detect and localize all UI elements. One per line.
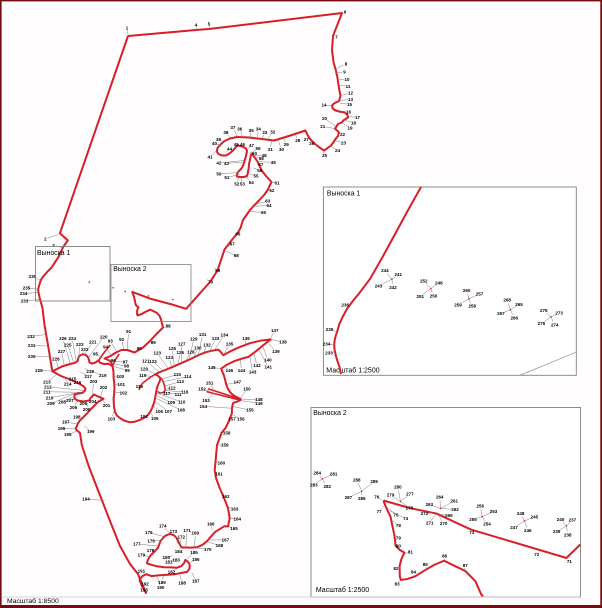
svg-text:271: 271 [426, 520, 434, 525]
svg-text:229: 229 [35, 368, 43, 373]
svg-text:264: 264 [436, 494, 444, 499]
svg-text:244: 244 [381, 268, 389, 273]
svg-text:285: 285 [370, 479, 378, 484]
svg-text:96: 96 [111, 358, 117, 363]
svg-text:238: 238 [564, 533, 572, 538]
svg-text:Масштаб 1:2500: Масштаб 1:2500 [316, 586, 369, 594]
svg-text:30: 30 [279, 147, 285, 152]
svg-text:Выноска 2: Выноска 2 [313, 410, 347, 417]
svg-text:150: 150 [243, 386, 251, 391]
svg-text:145: 145 [208, 365, 216, 370]
svg-text:84: 84 [411, 570, 417, 575]
svg-text:267: 267 [497, 311, 505, 316]
svg-text:122: 122 [149, 359, 157, 364]
svg-text:146: 146 [226, 368, 234, 373]
svg-text:131: 131 [199, 332, 207, 337]
svg-text:171: 171 [183, 528, 191, 533]
svg-text:62: 62 [269, 188, 275, 193]
svg-text:245: 245 [531, 514, 539, 519]
svg-text:209: 209 [47, 401, 55, 406]
svg-text:10: 10 [344, 77, 350, 82]
svg-text:159: 159 [221, 443, 229, 448]
svg-text:16: 16 [346, 110, 352, 115]
svg-text:153: 153 [202, 398, 210, 403]
svg-text:221: 221 [89, 339, 97, 344]
svg-text:26: 26 [309, 141, 315, 146]
svg-text:268: 268 [503, 298, 511, 303]
svg-text:242: 242 [389, 285, 397, 290]
svg-text:112: 112 [168, 385, 176, 390]
svg-text:205: 205 [80, 401, 88, 406]
svg-text:199: 199 [87, 429, 95, 434]
svg-text:37: 37 [230, 125, 236, 130]
svg-text:113: 113 [177, 379, 185, 384]
svg-text:137: 137 [271, 328, 279, 333]
svg-text:139: 139 [272, 349, 280, 354]
svg-text:45: 45 [234, 142, 240, 147]
svg-text:272: 272 [421, 511, 429, 516]
svg-text:254: 254 [483, 521, 491, 526]
svg-text:186: 186 [192, 557, 200, 562]
svg-text:195: 195 [64, 432, 72, 437]
svg-text:265: 265 [515, 302, 523, 307]
svg-text:117: 117 [163, 391, 171, 396]
svg-text:22: 22 [340, 132, 346, 137]
svg-text:133: 133 [212, 336, 220, 341]
svg-text:173: 173 [170, 529, 178, 534]
svg-text:82: 82 [393, 566, 399, 571]
svg-text:36: 36 [237, 127, 243, 132]
svg-text:174: 174 [159, 524, 167, 529]
svg-text:203: 203 [90, 379, 98, 384]
svg-text:142: 142 [253, 363, 261, 368]
svg-text:239: 239 [553, 529, 561, 534]
svg-text:77: 77 [377, 509, 383, 514]
svg-text:64: 64 [266, 203, 272, 208]
svg-text:31: 31 [268, 147, 274, 152]
svg-text:40: 40 [212, 141, 218, 146]
svg-text:191: 191 [138, 569, 146, 574]
svg-text:187: 187 [192, 579, 200, 584]
svg-text:208: 208 [58, 400, 66, 405]
svg-text:255: 255 [469, 517, 477, 522]
svg-text:29: 29 [284, 142, 290, 147]
svg-text:222: 222 [81, 347, 89, 352]
svg-text:196: 196 [58, 426, 66, 431]
svg-text:223: 223 [76, 342, 84, 347]
svg-text:130: 130 [194, 345, 202, 350]
svg-text:266: 266 [510, 315, 518, 320]
svg-text:109: 109 [168, 400, 176, 405]
svg-text:253: 253 [490, 509, 498, 514]
svg-text:155: 155 [246, 408, 254, 413]
svg-text:177: 177 [133, 542, 141, 547]
svg-text:108: 108 [177, 408, 185, 413]
svg-text:168: 168 [216, 543, 224, 548]
svg-text:70: 70 [208, 279, 214, 284]
svg-text:151: 151 [206, 380, 214, 385]
svg-text:237: 237 [569, 517, 577, 522]
svg-text:44: 44 [227, 147, 233, 152]
svg-text:90: 90 [137, 346, 143, 351]
svg-text:58: 58 [259, 156, 265, 161]
svg-text:92: 92 [119, 337, 125, 342]
svg-text:164: 164 [234, 517, 242, 522]
svg-text:95: 95 [93, 351, 99, 356]
svg-text:72: 72 [534, 552, 540, 557]
svg-text:250: 250 [430, 293, 438, 298]
svg-text:163: 163 [231, 507, 239, 512]
svg-text:53: 53 [240, 182, 246, 187]
svg-text:78: 78 [396, 523, 402, 528]
svg-text:105: 105 [151, 416, 159, 421]
svg-text:74: 74 [403, 516, 409, 521]
svg-text:144: 144 [238, 368, 246, 373]
svg-text:118: 118 [136, 384, 144, 389]
svg-text:120: 120 [141, 366, 149, 371]
svg-text:175: 175 [145, 530, 153, 535]
svg-text:65: 65 [261, 210, 267, 215]
svg-text:71: 71 [567, 559, 573, 564]
svg-text:104: 104 [140, 414, 148, 419]
svg-text:17: 17 [355, 115, 361, 120]
svg-text:99: 99 [125, 368, 131, 373]
svg-text:214: 214 [64, 382, 72, 387]
svg-text:234: 234 [20, 291, 28, 296]
svg-text:20: 20 [322, 116, 328, 121]
svg-text:57: 57 [258, 162, 264, 167]
svg-text:273: 273 [555, 311, 563, 316]
svg-text:47: 47 [249, 143, 255, 148]
svg-text:14: 14 [321, 103, 327, 108]
svg-text:67: 67 [230, 241, 236, 246]
svg-text:152: 152 [198, 387, 206, 392]
svg-text:280: 280 [394, 484, 402, 489]
svg-text:281: 281 [330, 472, 338, 477]
svg-text:50: 50 [216, 171, 222, 176]
svg-text:143: 143 [249, 369, 257, 374]
svg-text:Масштаб 1:8500: Масштаб 1:8500 [7, 597, 59, 605]
svg-text:49: 49 [271, 160, 277, 165]
svg-text:235: 235 [326, 327, 334, 332]
svg-text:243: 243 [375, 284, 383, 289]
svg-text:247: 247 [510, 525, 518, 530]
svg-text:182: 182 [168, 569, 176, 574]
svg-text:129: 129 [190, 337, 198, 342]
svg-text:136: 136 [242, 336, 250, 341]
svg-text:276: 276 [540, 308, 548, 313]
svg-text:103: 103 [108, 417, 116, 422]
svg-text:116: 116 [181, 389, 189, 394]
svg-text:41: 41 [207, 155, 213, 160]
svg-text:42: 42 [216, 161, 222, 166]
svg-text:227: 227 [58, 349, 66, 354]
svg-text:260: 260 [463, 288, 471, 293]
svg-text:87: 87 [463, 563, 469, 568]
svg-text:25: 25 [322, 153, 328, 158]
svg-text:190: 190 [157, 585, 165, 590]
svg-text:256: 256 [476, 503, 484, 508]
svg-text:275: 275 [538, 321, 546, 326]
svg-text:73: 73 [469, 530, 475, 535]
svg-text:263: 263 [425, 502, 433, 507]
svg-text:33: 33 [262, 130, 268, 135]
svg-text:226: 226 [59, 336, 67, 341]
svg-text:278: 278 [406, 505, 414, 510]
svg-text:220: 220 [100, 335, 108, 340]
svg-text:274: 274 [551, 323, 559, 328]
svg-text:241: 241 [395, 272, 403, 277]
svg-text:125: 125 [168, 346, 176, 351]
svg-text:132: 132 [203, 342, 211, 347]
svg-text:156: 156 [237, 417, 245, 422]
svg-text:178: 178 [147, 548, 155, 553]
svg-text:258: 258 [469, 304, 477, 309]
svg-text:282: 282 [323, 484, 331, 489]
svg-text:102: 102 [120, 390, 128, 395]
svg-text:279: 279 [387, 492, 395, 497]
svg-text:Выноска 2: Выноска 2 [113, 266, 147, 273]
svg-text:161: 161 [215, 471, 223, 476]
svg-text:114: 114 [184, 374, 192, 379]
svg-text:119: 119 [139, 373, 147, 378]
svg-text:79: 79 [396, 535, 402, 540]
svg-text:166: 166 [207, 521, 215, 526]
svg-text:141: 141 [265, 365, 273, 370]
svg-text:201: 201 [103, 403, 111, 408]
svg-text:160: 160 [218, 461, 226, 466]
svg-text:179: 179 [138, 552, 146, 557]
svg-text:167: 167 [222, 537, 230, 542]
svg-text:11: 11 [346, 84, 351, 89]
svg-text:21: 21 [320, 124, 326, 129]
svg-text:169: 169 [192, 531, 200, 536]
svg-text:19: 19 [347, 126, 353, 131]
svg-text:140: 140 [264, 357, 272, 362]
svg-text:66: 66 [235, 232, 241, 237]
svg-text:200: 200 [83, 407, 91, 412]
svg-text:287: 287 [345, 495, 353, 500]
svg-text:Выноска 1: Выноска 1 [37, 250, 71, 257]
svg-text:46: 46 [240, 142, 246, 147]
svg-text:210: 210 [46, 395, 54, 400]
svg-text:88: 88 [166, 324, 172, 329]
svg-text:93: 93 [108, 339, 114, 344]
svg-text:262: 262 [451, 507, 459, 512]
svg-text:194: 194 [82, 497, 90, 502]
svg-text:55: 55 [253, 174, 259, 179]
svg-text:234: 234 [323, 342, 331, 347]
svg-text:207: 207 [66, 398, 74, 403]
svg-text:202: 202 [100, 385, 108, 390]
svg-text:259: 259 [454, 303, 462, 308]
svg-text:80: 80 [396, 544, 402, 549]
svg-text:68: 68 [234, 253, 240, 258]
svg-text:228: 228 [52, 356, 60, 361]
svg-text:85: 85 [423, 562, 429, 567]
svg-text:86: 86 [442, 553, 448, 558]
svg-text:162: 162 [222, 494, 230, 499]
svg-text:216: 216 [74, 380, 82, 385]
svg-text:269: 269 [445, 513, 453, 518]
svg-text:206: 206 [70, 405, 78, 410]
svg-text:240: 240 [557, 517, 565, 522]
svg-text:288: 288 [353, 477, 361, 482]
svg-text:261: 261 [450, 499, 458, 504]
svg-text:211: 211 [43, 389, 51, 394]
svg-text:91: 91 [126, 329, 132, 334]
svg-text:246: 246 [524, 528, 532, 533]
svg-text:83: 83 [395, 582, 401, 587]
svg-text:61: 61 [274, 181, 280, 186]
svg-text:81: 81 [408, 549, 414, 554]
svg-text:134: 134 [220, 333, 228, 338]
svg-text:165: 165 [230, 526, 238, 531]
svg-text:124: 124 [165, 355, 173, 360]
svg-text:224: 224 [68, 336, 76, 341]
svg-text:233: 233 [325, 350, 333, 355]
svg-text:184: 184 [175, 549, 183, 554]
svg-text:101: 101 [118, 382, 126, 387]
svg-text:127: 127 [178, 342, 186, 347]
svg-text:192: 192 [141, 582, 149, 587]
svg-text:60: 60 [252, 151, 258, 156]
svg-text:43: 43 [224, 161, 230, 166]
svg-text:27: 27 [304, 137, 310, 142]
svg-text:218: 218 [86, 369, 94, 374]
svg-text:193: 193 [140, 587, 148, 592]
svg-text:115: 115 [174, 372, 182, 377]
svg-text:56: 56 [257, 168, 263, 173]
svg-text:51: 51 [224, 175, 230, 180]
svg-text:198: 198 [73, 415, 81, 420]
svg-text:204: 204 [89, 399, 97, 404]
svg-text:257: 257 [476, 292, 484, 297]
svg-text:100: 100 [117, 374, 125, 379]
svg-text:69: 69 [215, 268, 221, 273]
svg-text:23: 23 [341, 141, 347, 146]
svg-text:158: 158 [223, 431, 231, 436]
svg-text:283: 283 [310, 482, 318, 487]
svg-text:217: 217 [84, 374, 92, 379]
svg-text:107: 107 [165, 409, 173, 414]
svg-text:15: 15 [347, 102, 353, 107]
svg-text:252: 252 [420, 278, 428, 283]
svg-text:248: 248 [517, 511, 525, 516]
svg-text:149: 149 [255, 401, 263, 406]
svg-text:286: 286 [358, 496, 366, 501]
svg-text:185: 185 [190, 550, 198, 555]
svg-text:12: 12 [348, 91, 354, 96]
svg-text:123: 123 [153, 351, 161, 356]
svg-text:212: 212 [44, 384, 52, 389]
svg-text:28: 28 [295, 138, 301, 143]
svg-text:35: 35 [249, 128, 255, 133]
svg-text:38: 38 [223, 130, 229, 135]
svg-text:284: 284 [314, 471, 322, 476]
svg-text:135: 135 [226, 342, 234, 347]
svg-text:94: 94 [103, 344, 109, 349]
svg-text:231: 231 [28, 343, 36, 348]
svg-text:154: 154 [200, 404, 208, 409]
svg-text:24: 24 [335, 148, 341, 153]
svg-text:225: 225 [64, 342, 72, 347]
svg-text:Масштаб 1:2500: Масштаб 1:2500 [326, 367, 379, 375]
svg-text:89: 89 [151, 340, 157, 345]
svg-text:232: 232 [27, 334, 35, 339]
svg-text:157: 157 [228, 417, 236, 422]
svg-text:32: 32 [270, 130, 276, 135]
svg-text:230: 230 [28, 354, 36, 359]
svg-text:188: 188 [178, 580, 186, 585]
svg-text:270: 270 [440, 521, 448, 526]
svg-text:236: 236 [342, 303, 350, 308]
svg-text:126: 126 [176, 350, 184, 355]
svg-text:277: 277 [406, 492, 414, 497]
svg-text:170: 170 [204, 547, 212, 552]
svg-text:183: 183 [172, 558, 180, 563]
svg-text:110: 110 [178, 399, 186, 404]
svg-text:Выноска 1: Выноска 1 [327, 191, 361, 198]
svg-text:213: 213 [43, 379, 51, 384]
svg-text:172: 172 [177, 534, 185, 539]
svg-text:219: 219 [99, 373, 107, 378]
svg-text:251: 251 [417, 294, 425, 299]
svg-text:54: 54 [249, 180, 255, 185]
svg-text:147: 147 [234, 380, 242, 385]
svg-text:248: 248 [435, 281, 443, 286]
svg-text:176: 176 [147, 538, 155, 543]
svg-text:34: 34 [256, 127, 262, 132]
svg-text:233: 233 [21, 299, 29, 304]
svg-text:197: 197 [62, 420, 70, 425]
svg-text:235: 235 [23, 286, 31, 291]
svg-text:76: 76 [374, 494, 380, 499]
svg-text:106: 106 [156, 409, 164, 414]
svg-text:138: 138 [279, 340, 287, 345]
